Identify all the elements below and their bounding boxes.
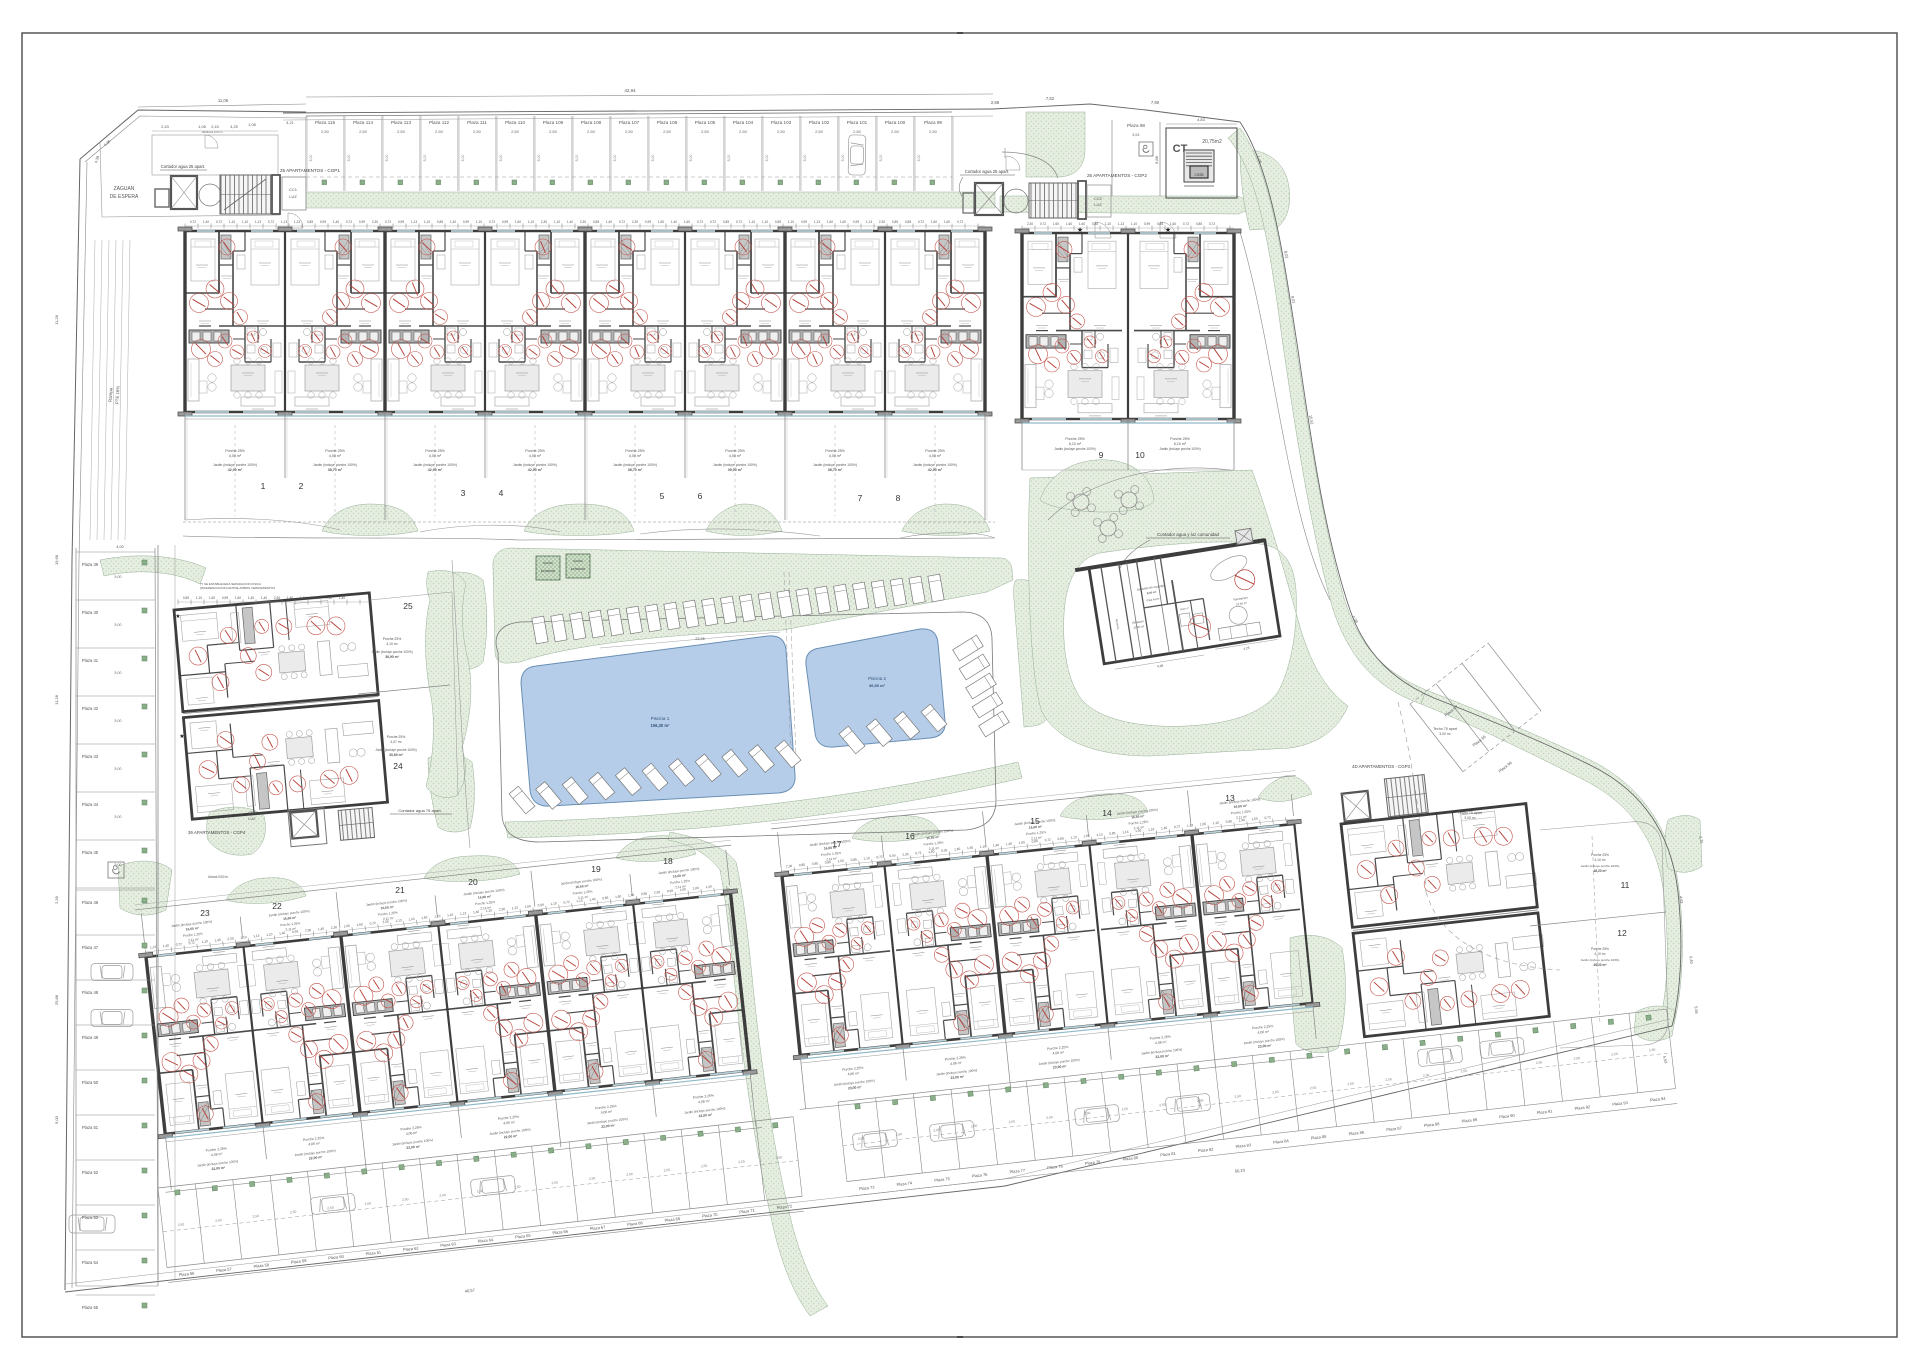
svg-text:Porche 25%: Porche 25% bbox=[525, 449, 545, 453]
svg-text:Cortador agua 25 apart.: Cortador agua 25 apart. bbox=[965, 169, 1009, 174]
svg-text:Porche 25%: Porche 25% bbox=[1591, 853, 1609, 857]
svg-text:EXTERIOR: EXTERIOR bbox=[571, 567, 585, 571]
svg-text:1,60: 1,60 bbox=[967, 846, 974, 851]
svg-text:(DIFERENCIACION) ENTRE AMBOS C: (DIFERENCIACION) ENTRE AMBOS CERRAMIENTO… bbox=[200, 586, 275, 590]
svg-text:0,99: 0,99 bbox=[222, 596, 228, 600]
svg-text:13: 13 bbox=[1225, 793, 1235, 803]
svg-text:1,60: 1,60 bbox=[1066, 222, 1072, 226]
svg-text:1,40: 1,40 bbox=[248, 596, 254, 600]
svg-text:2: 2 bbox=[299, 481, 304, 491]
svg-text:1,13: 1,13 bbox=[1118, 222, 1124, 226]
svg-text:2,50: 2,50 bbox=[625, 129, 634, 134]
svg-text:1,10: 1,10 bbox=[1131, 222, 1137, 226]
svg-text:1,10: 1,10 bbox=[196, 596, 202, 600]
svg-text:0,85: 0,85 bbox=[641, 891, 648, 896]
svg-text:2,50: 2,50 bbox=[1046, 1115, 1053, 1120]
svg-text:1,40: 1,40 bbox=[1006, 842, 1013, 847]
svg-text:1,60: 1,60 bbox=[1019, 840, 1026, 845]
svg-text:17: 17 bbox=[832, 839, 842, 849]
svg-text:Jardin (incluye porche 100%): Jardin (incluye porche 100%) bbox=[1159, 447, 1200, 451]
svg-text:1,10: 1,10 bbox=[550, 901, 557, 906]
svg-text:0,72: 0,72 bbox=[710, 220, 716, 224]
svg-text:2,50: 2,50 bbox=[551, 1180, 558, 1185]
svg-text:5,00: 5,00 bbox=[461, 155, 465, 162]
svg-text:2,50: 2,50 bbox=[215, 1218, 222, 1223]
svg-text:2,50: 2,50 bbox=[589, 1176, 596, 1181]
svg-text:1,13: 1,13 bbox=[294, 220, 300, 224]
svg-text:4,00 m²: 4,00 m² bbox=[629, 454, 642, 458]
svg-text:22: 22 bbox=[272, 901, 282, 911]
svg-text:0,72: 0,72 bbox=[268, 220, 274, 224]
svg-text:11: 11 bbox=[1621, 880, 1630, 890]
svg-text:Plaza 55: Plaza 55 bbox=[82, 1305, 99, 1310]
svg-text:Plaza 47: Plaza 47 bbox=[82, 945, 99, 950]
svg-text:Plaza 113: Plaza 113 bbox=[391, 120, 412, 125]
svg-text:1,13: 1,13 bbox=[1187, 823, 1194, 828]
svg-text:20: 20 bbox=[468, 877, 478, 887]
svg-text:0,99: 0,99 bbox=[889, 853, 896, 858]
svg-text:2,50: 2,50 bbox=[1460, 1069, 1467, 1074]
svg-text:2,50: 2,50 bbox=[1611, 1052, 1618, 1057]
svg-text:DE ESPERA: DE ESPERA bbox=[110, 194, 139, 200]
svg-text:1,40: 1,40 bbox=[705, 884, 712, 889]
svg-text:0,72: 0,72 bbox=[1044, 838, 1051, 843]
svg-text:0,85: 0,85 bbox=[593, 220, 599, 224]
svg-text:1,60: 1,60 bbox=[1079, 222, 1085, 226]
svg-text:1,10: 1,10 bbox=[1105, 222, 1111, 226]
svg-text:1,10: 1,10 bbox=[528, 220, 534, 224]
svg-text:Plaza 103: Plaza 103 bbox=[771, 120, 792, 125]
svg-text:0,99: 0,99 bbox=[645, 220, 651, 224]
svg-text:Plaza 44: Plaza 44 bbox=[82, 802, 99, 807]
svg-text:1,10: 1,10 bbox=[554, 220, 560, 224]
svg-text:2,50: 2,50 bbox=[252, 1214, 259, 1219]
svg-text:5,00: 5,00 bbox=[879, 155, 883, 162]
svg-text:2,50: 2,50 bbox=[1084, 1111, 1091, 1116]
svg-text:Plaza 108: Plaza 108 bbox=[581, 120, 602, 125]
svg-text:1,60: 1,60 bbox=[524, 904, 531, 909]
svg-text:106,30 m²: 106,30 m² bbox=[650, 723, 670, 728]
svg-text:Jardin (incluye porche 100%): Jardin (incluye porche 100%) bbox=[513, 463, 557, 467]
svg-text:Plaza 100: Plaza 100 bbox=[885, 120, 906, 125]
svg-text:1,60: 1,60 bbox=[954, 847, 961, 852]
svg-text:Plaza 114: Plaza 114 bbox=[353, 120, 374, 125]
svg-text:1,40: 1,40 bbox=[589, 897, 596, 902]
svg-text:0,72: 0,72 bbox=[697, 220, 703, 224]
svg-text:5,00: 5,00 bbox=[115, 671, 122, 675]
svg-text:0,85: 0,85 bbox=[1057, 836, 1064, 841]
svg-text:4D APARTAMENTOS - CGP3: 4D APARTAMENTOS - CGP3 bbox=[1352, 764, 1411, 769]
svg-text:1,10: 1,10 bbox=[266, 932, 273, 937]
svg-text:4,21: 4,21 bbox=[286, 121, 293, 125]
svg-text:11,28: 11,28 bbox=[54, 694, 59, 704]
svg-text:7: 7 bbox=[858, 493, 863, 503]
svg-text:5,00: 5,00 bbox=[613, 155, 617, 162]
svg-text:7,90: 7,90 bbox=[1151, 100, 1160, 105]
svg-text:CC1: CC1 bbox=[289, 187, 298, 192]
svg-text:1,10: 1,10 bbox=[1148, 827, 1155, 832]
svg-text:1,10: 1,10 bbox=[408, 917, 415, 922]
svg-text:Teatro 75 apart: Teatro 75 apart bbox=[1458, 811, 1482, 815]
svg-text:1,13: 1,13 bbox=[512, 906, 519, 911]
svg-text:4,00 m²: 4,00 m² bbox=[229, 454, 242, 458]
svg-text:4: 4 bbox=[499, 488, 504, 498]
svg-text:Plaza 109: Plaza 109 bbox=[543, 120, 564, 125]
svg-text:38,70 m²: 38,70 m² bbox=[828, 468, 843, 472]
svg-text:1,13: 1,13 bbox=[1070, 835, 1077, 840]
svg-text:0,99: 0,99 bbox=[667, 889, 674, 894]
svg-text:2,50: 2,50 bbox=[1498, 1064, 1505, 1069]
svg-text:2,50: 2,50 bbox=[853, 129, 862, 134]
svg-text:5,00: 5,00 bbox=[347, 155, 351, 162]
svg-text:2,50: 2,50 bbox=[701, 129, 710, 134]
svg-text:1,40: 1,40 bbox=[333, 220, 339, 224]
svg-text:Jardin (incluye porche 100%): Jardin (incluye porche 100%) bbox=[413, 463, 457, 467]
svg-text:0,99: 0,99 bbox=[1144, 222, 1150, 226]
svg-text:0,85: 0,85 bbox=[799, 863, 806, 868]
svg-text:Porche 25%: Porche 25% bbox=[1591, 947, 1609, 951]
svg-text:2,50: 2,50 bbox=[701, 1164, 708, 1169]
svg-text:2,30: 2,30 bbox=[1027, 222, 1033, 226]
svg-text:Plaza 106: Plaza 106 bbox=[657, 120, 678, 125]
svg-text:2,50: 2,50 bbox=[1272, 1090, 1279, 1095]
svg-text:1,60: 1,60 bbox=[1200, 822, 1207, 827]
svg-text:1,40: 1,40 bbox=[1161, 826, 1168, 831]
svg-text:1,13: 1,13 bbox=[866, 220, 872, 224]
svg-text:0,85: 0,85 bbox=[812, 861, 819, 866]
svg-text:18: 18 bbox=[663, 856, 673, 866]
svg-text:2,50: 2,50 bbox=[1649, 1048, 1656, 1053]
svg-text:0,72: 0,72 bbox=[563, 900, 570, 905]
svg-text:19: 19 bbox=[591, 864, 601, 874]
svg-text:4,00: 4,00 bbox=[116, 545, 123, 549]
svg-text:25 APARTAMENTOS - CGP2: 25 APARTAMENTOS - CGP2 bbox=[1087, 173, 1147, 178]
svg-text:1,60: 1,60 bbox=[837, 859, 844, 864]
svg-text:Porche 25%: Porche 25% bbox=[925, 449, 945, 453]
svg-text:Plaza 112: Plaza 112 bbox=[429, 120, 450, 125]
svg-text:10: 10 bbox=[1135, 450, 1145, 460]
svg-text:1,13: 1,13 bbox=[411, 220, 417, 224]
svg-text:0,99: 0,99 bbox=[801, 220, 807, 224]
svg-text:3,00 m²: 3,00 m² bbox=[1439, 732, 1451, 736]
svg-text:Plaza 98: Plaza 98 bbox=[1127, 123, 1145, 128]
svg-text:5,00: 5,00 bbox=[537, 155, 541, 162]
svg-text:1,60: 1,60 bbox=[421, 915, 428, 920]
svg-text:42,94: 42,94 bbox=[624, 88, 636, 93]
svg-text:2,50: 2,50 bbox=[1385, 1077, 1392, 1082]
svg-text:1,40: 1,40 bbox=[300, 596, 306, 600]
svg-text:LUZ: LUZ bbox=[1094, 202, 1102, 207]
svg-text:1,10: 1,10 bbox=[242, 220, 248, 224]
svg-text:Piscina 1: Piscina 1 bbox=[651, 716, 670, 721]
svg-text:2,43: 2,43 bbox=[211, 125, 218, 129]
svg-text:2,30: 2,30 bbox=[541, 220, 547, 224]
svg-text:0,99: 0,99 bbox=[320, 220, 326, 224]
svg-text:4,00 m²: 4,00 m² bbox=[929, 454, 942, 458]
svg-text:0,72: 0,72 bbox=[1209, 222, 1215, 226]
svg-text:23: 23 bbox=[200, 908, 210, 918]
svg-text:1,40: 1,40 bbox=[450, 220, 456, 224]
svg-text:2,50: 2,50 bbox=[1197, 1098, 1204, 1103]
svg-text:14: 14 bbox=[1102, 808, 1112, 818]
svg-text:0,85: 0,85 bbox=[723, 220, 729, 224]
svg-text:2,30: 2,30 bbox=[331, 925, 338, 930]
svg-text:2,30: 2,30 bbox=[902, 852, 909, 857]
svg-text:2,50: 2,50 bbox=[1310, 1086, 1317, 1091]
svg-text:1,60: 1,60 bbox=[827, 220, 833, 224]
svg-text:25,88: 25,88 bbox=[54, 994, 59, 1005]
svg-text:Jardin (incluye porche 100%): Jardin (incluye porche 100%) bbox=[371, 650, 412, 654]
svg-text:1,10: 1,10 bbox=[476, 220, 482, 224]
svg-text:2,50: 2,50 bbox=[511, 129, 520, 134]
svg-text:EXTERIOR: EXTERIOR bbox=[541, 569, 555, 573]
svg-text:Porche 25%: Porche 25% bbox=[1170, 437, 1190, 441]
svg-text:Plaza 115: Plaza 115 bbox=[315, 120, 336, 125]
svg-text:2,30: 2,30 bbox=[580, 220, 586, 224]
svg-text:1,40: 1,40 bbox=[473, 910, 480, 915]
svg-text:0,99: 0,99 bbox=[941, 848, 948, 853]
svg-text:Jardin (incluye porche 100%): Jardin (incluye porche 100%) bbox=[1054, 447, 1095, 451]
svg-text:36 APARTAMENTOS - CGP4: 36 APARTAMENTOS - CGP4 bbox=[188, 830, 246, 835]
svg-text:1,10: 1,10 bbox=[788, 220, 794, 224]
svg-text:Plaza 105: Plaza 105 bbox=[695, 120, 716, 125]
svg-text:LUZ: LUZ bbox=[289, 194, 297, 199]
svg-text:3: 3 bbox=[461, 488, 466, 498]
svg-text:0,85: 0,85 bbox=[850, 857, 857, 862]
svg-text:1,10: 1,10 bbox=[1213, 821, 1220, 826]
svg-text:4,00 m²: 4,00 m² bbox=[829, 454, 842, 458]
svg-text:5,00: 5,00 bbox=[115, 575, 122, 579]
svg-text:38,70 m²: 38,70 m² bbox=[628, 468, 643, 472]
svg-text:Contador agua y luz comunidad: Contador agua y luz comunidad bbox=[1157, 532, 1220, 537]
svg-text:0,72: 0,72 bbox=[1174, 825, 1181, 830]
svg-text:2,50: 2,50 bbox=[290, 1210, 297, 1215]
svg-text:2,50: 2,50 bbox=[435, 129, 444, 134]
svg-text:4,83: 4,83 bbox=[1197, 117, 1206, 122]
svg-text:Jardin (incluye porche 100%): Jardin (incluye porche 100%) bbox=[813, 463, 857, 467]
svg-text:5,00: 5,00 bbox=[765, 155, 769, 162]
svg-text:19,68: 19,68 bbox=[54, 554, 59, 565]
svg-text:CC2: CC2 bbox=[1094, 196, 1103, 201]
svg-text:2,50: 2,50 bbox=[1423, 1073, 1430, 1078]
svg-text:1,10: 1,10 bbox=[201, 939, 208, 944]
svg-text:Porche 25%: Porche 25% bbox=[625, 449, 645, 453]
svg-text:2,30: 2,30 bbox=[786, 864, 793, 869]
svg-text:5: 5 bbox=[660, 491, 665, 501]
svg-text:2,50: 2,50 bbox=[178, 1222, 185, 1227]
svg-text:2,50: 2,50 bbox=[775, 1155, 782, 1160]
svg-text:42,90 m²: 42,90 m² bbox=[528, 468, 543, 472]
svg-text:48,20 m²: 48,20 m² bbox=[1593, 963, 1607, 967]
svg-text:20,75m2: 20,75m2 bbox=[1202, 139, 1222, 145]
svg-text:4,07 m²: 4,07 m² bbox=[390, 740, 402, 744]
svg-text:0,72: 0,72 bbox=[489, 220, 495, 224]
svg-text:CGSB: CGSB bbox=[1194, 173, 1203, 177]
svg-text:0,99: 0,99 bbox=[502, 220, 508, 224]
svg-text:1,40: 1,40 bbox=[567, 220, 573, 224]
svg-text:4,10 m²: 4,10 m² bbox=[1594, 858, 1606, 862]
svg-text:2,50: 2,50 bbox=[738, 1159, 745, 1164]
svg-text:Cortador agua 25 apart.: Cortador agua 25 apart. bbox=[161, 164, 205, 169]
svg-text:0,99: 0,99 bbox=[398, 220, 404, 224]
svg-text:36,90 m²: 36,90 m² bbox=[385, 655, 399, 659]
svg-text:0,85: 0,85 bbox=[602, 896, 609, 901]
svg-text:5,00: 5,00 bbox=[115, 623, 122, 627]
svg-text:1,40: 1,40 bbox=[606, 220, 612, 224]
svg-text:4,00 m²: 4,00 m² bbox=[429, 454, 442, 458]
svg-text:5,00: 5,00 bbox=[115, 863, 122, 867]
svg-text:25 APARTAMENTOS - CGP1: 25 APARTAMENTOS - CGP1 bbox=[280, 168, 340, 173]
svg-text:1,08: 1,08 bbox=[248, 123, 255, 127]
svg-text:5,00: 5,00 bbox=[385, 155, 389, 162]
svg-text:Jardinera 0,03 m: Jardinera 0,03 m bbox=[202, 130, 224, 134]
svg-text:0,85: 0,85 bbox=[313, 596, 319, 600]
svg-text:1: 1 bbox=[261, 481, 266, 491]
svg-text:1,13: 1,13 bbox=[460, 911, 467, 916]
svg-text:Porche 25%: Porche 25% bbox=[425, 449, 445, 453]
svg-text:2,50: 2,50 bbox=[359, 129, 368, 134]
svg-text:1,60: 1,60 bbox=[692, 886, 699, 891]
svg-text:1,13: 1,13 bbox=[253, 934, 260, 939]
svg-text:2,43: 2,43 bbox=[161, 125, 168, 129]
svg-text:2,50: 2,50 bbox=[549, 129, 558, 134]
svg-text:2,30: 2,30 bbox=[227, 936, 234, 941]
svg-text:0,99: 0,99 bbox=[853, 220, 859, 224]
svg-text:Jardin (incluye porche 100%): Jardin (incluye porche 100%) bbox=[1581, 958, 1620, 962]
svg-text:4,00 m²: 4,00 m² bbox=[329, 454, 342, 458]
svg-text:Jardin (incluye porche 100%): Jardin (incluye porche 100%) bbox=[313, 463, 357, 467]
svg-text:6: 6 bbox=[698, 491, 703, 501]
svg-text:1,13: 1,13 bbox=[1122, 830, 1129, 835]
svg-text:1,60: 1,60 bbox=[658, 220, 664, 224]
svg-text:2,50: 2,50 bbox=[663, 1168, 670, 1173]
svg-text:Plaza 54: Plaza 54 bbox=[82, 1260, 99, 1265]
svg-text:0,72: 0,72 bbox=[1040, 222, 1046, 226]
svg-text:Plaza 48: Plaza 48 bbox=[82, 990, 99, 995]
svg-text:1,60: 1,60 bbox=[515, 220, 521, 224]
svg-text:4,00 m²: 4,00 m² bbox=[529, 454, 542, 458]
svg-text:12: 12 bbox=[1617, 928, 1627, 938]
svg-text:1,10: 1,10 bbox=[424, 220, 430, 224]
svg-text:5,00: 5,00 bbox=[575, 155, 579, 162]
svg-text:0,99: 0,99 bbox=[463, 220, 469, 224]
svg-text:Plaza 53: Plaza 53 bbox=[82, 1215, 99, 1220]
svg-text:Urbani 0/00 le.: Urbani 0/00 le. bbox=[208, 875, 229, 879]
svg-text:2,50: 2,50 bbox=[777, 129, 786, 134]
svg-text:42,90 m²: 42,90 m² bbox=[928, 468, 943, 472]
svg-text:2,50: 2,50 bbox=[1347, 1081, 1354, 1086]
svg-text:1,40: 1,40 bbox=[318, 927, 325, 932]
svg-text:2,30: 2,30 bbox=[274, 596, 280, 600]
svg-text:2,50: 2,50 bbox=[1573, 1056, 1580, 1061]
svg-text:6,40: 6,40 bbox=[1689, 956, 1694, 964]
svg-text:1,10: 1,10 bbox=[229, 220, 235, 224]
svg-text:0,85: 0,85 bbox=[775, 220, 781, 224]
svg-text:1,13: 1,13 bbox=[150, 945, 157, 950]
svg-text:16: 16 bbox=[905, 831, 915, 841]
svg-text:1,40: 1,40 bbox=[163, 943, 170, 948]
svg-text:Porche 25%: Porche 25% bbox=[383, 637, 401, 641]
svg-text:1,13: 1,13 bbox=[814, 220, 820, 224]
svg-text:Plaza 45: Plaza 45 bbox=[82, 850, 99, 855]
svg-text:Jardin (incluye porche 100%): Jardin (incluye porche 100%) bbox=[1581, 864, 1620, 868]
svg-text:0,85: 0,85 bbox=[905, 220, 911, 224]
svg-text:0,72: 0,72 bbox=[915, 851, 922, 856]
svg-text:5,00: 5,00 bbox=[115, 719, 122, 723]
svg-text:4,10 m²: 4,10 m² bbox=[386, 642, 398, 646]
svg-text:24: 24 bbox=[393, 761, 403, 771]
svg-text:Plaza 110: Plaza 110 bbox=[505, 120, 526, 125]
svg-text:1,60: 1,60 bbox=[209, 596, 215, 600]
svg-text:1,10: 1,10 bbox=[326, 596, 332, 600]
svg-text:2,50: 2,50 bbox=[626, 1172, 633, 1177]
svg-text:Jardin (incluye porche 100%): Jardin (incluye porche 100%) bbox=[613, 463, 657, 467]
svg-text:6,88: 6,88 bbox=[1154, 155, 1159, 164]
svg-text:1,60: 1,60 bbox=[1170, 222, 1176, 226]
svg-text:1,60: 1,60 bbox=[235, 596, 241, 600]
svg-text:2,50: 2,50 bbox=[397, 129, 406, 134]
svg-text:0,85: 0,85 bbox=[183, 596, 189, 600]
svg-text:2,50: 2,50 bbox=[971, 1124, 978, 1129]
svg-text:0,72: 0,72 bbox=[190, 220, 196, 224]
svg-text:48,20 m²: 48,20 m² bbox=[1593, 869, 1607, 873]
svg-text:2,30: 2,30 bbox=[499, 907, 506, 912]
svg-text:1,60: 1,60 bbox=[1083, 834, 1090, 839]
svg-text:5,00: 5,00 bbox=[803, 155, 807, 162]
svg-text:Porche 25%: Porche 25% bbox=[725, 449, 745, 453]
svg-text:Plaza 39: Plaza 39 bbox=[82, 562, 99, 567]
svg-text:0,85: 0,85 bbox=[1109, 831, 1116, 836]
svg-text:1,60: 1,60 bbox=[684, 220, 690, 224]
svg-text:CC4: CC4 bbox=[248, 811, 256, 815]
svg-text:Porche 25%: Porche 25% bbox=[225, 449, 245, 453]
svg-text:0,72: 0,72 bbox=[957, 220, 963, 224]
svg-text:1,40: 1,40 bbox=[993, 843, 1000, 848]
svg-text:2,50: 2,50 bbox=[663, 129, 672, 134]
svg-text:2,50: 2,50 bbox=[1121, 1107, 1128, 1112]
svg-text:5,00: 5,00 bbox=[917, 155, 921, 162]
svg-text:5,00: 5,00 bbox=[499, 155, 503, 162]
svg-text:0,72: 0,72 bbox=[918, 220, 924, 224]
svg-text:Jardin (incluye porche 100%): Jardin (incluye porche 100%) bbox=[213, 463, 257, 467]
svg-text:38,70 m²: 38,70 m² bbox=[328, 468, 343, 472]
svg-text:1,60: 1,60 bbox=[615, 894, 622, 899]
svg-text:0,99: 0,99 bbox=[537, 903, 544, 908]
svg-text:1,40: 1,40 bbox=[287, 596, 293, 600]
svg-text:1,60: 1,60 bbox=[356, 922, 363, 927]
svg-text:5,00: 5,00 bbox=[309, 155, 313, 162]
svg-text:0,72: 0,72 bbox=[176, 942, 183, 947]
svg-text:1,60: 1,60 bbox=[628, 893, 635, 898]
svg-text:0,72: 0,72 bbox=[736, 220, 742, 224]
svg-text:Jardin (incluye porche 100%): Jardin (incluye porche 100%) bbox=[713, 463, 757, 467]
svg-text:1,60: 1,60 bbox=[344, 924, 351, 929]
svg-text:2,30: 2,30 bbox=[632, 220, 638, 224]
svg-text:★: ★ bbox=[179, 733, 184, 740]
svg-text:1,40: 1,40 bbox=[671, 220, 677, 224]
svg-text:Jardin (incluye porche 100%): Jardin (incluye porche 100%) bbox=[913, 463, 957, 467]
svg-text:1,40: 1,40 bbox=[339, 596, 345, 600]
svg-text:1,10: 1,10 bbox=[240, 935, 247, 940]
svg-text:0,72: 0,72 bbox=[369, 921, 376, 926]
svg-text:1,60: 1,60 bbox=[931, 220, 937, 224]
svg-text:SAUNA: SAUNA bbox=[543, 561, 553, 565]
svg-text:0,85: 0,85 bbox=[892, 220, 898, 224]
svg-text:2,50: 2,50 bbox=[891, 129, 900, 134]
svg-text:Rampa: Rampa bbox=[108, 387, 114, 402]
svg-text:11,28: 11,28 bbox=[54, 314, 59, 324]
svg-text:ZAGUAN: ZAGUAN bbox=[114, 186, 135, 192]
